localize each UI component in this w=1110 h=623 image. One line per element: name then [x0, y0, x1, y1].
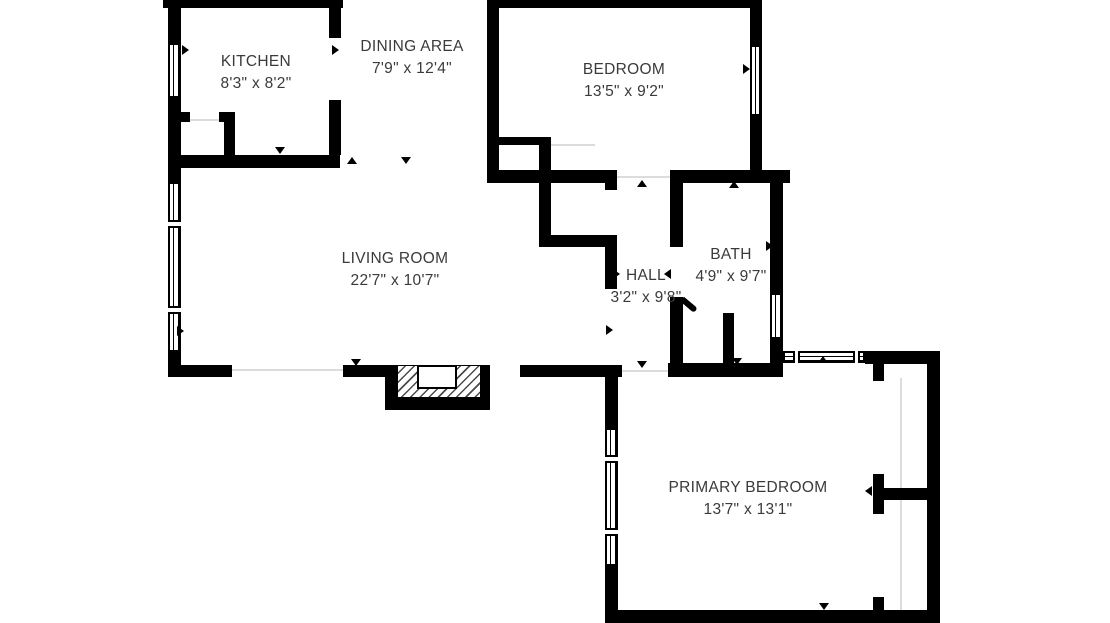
- room-name: DINING AREA: [332, 36, 492, 58]
- primary-closet-wall-stub-a: [873, 363, 884, 381]
- fireplace-firebox: [417, 365, 457, 389]
- bedroom-door-threshold: [617, 176, 670, 178]
- direction-marker-icon: [637, 180, 647, 187]
- room-name: PRIMARY BEDROOM: [626, 477, 870, 499]
- bedroom-door-jamb: [605, 183, 617, 190]
- direction-marker-icon: [401, 157, 411, 164]
- room-dimensions: 7'9" x 12'4": [332, 58, 492, 80]
- room-label-dining-area: DINING AREA 7'9" x 12'4": [332, 36, 492, 80]
- direction-marker-icon: [606, 325, 613, 335]
- room-dimensions: 13'5" x 9'2": [544, 81, 704, 103]
- direction-marker-icon: [729, 181, 739, 188]
- primary-closet-wall-stub-b: [873, 474, 884, 514]
- room-label-bath: BATH 4'9" x 9'7": [669, 244, 793, 288]
- wall-living-left-upper: [168, 168, 181, 183]
- wall-kitchen-left-upper: [168, 0, 181, 45]
- wall-primary-bottom: [605, 610, 940, 623]
- room-label-living-room: LIVING ROOM 22'7" x 10'7": [295, 248, 495, 292]
- room-dimensions: 8'3" x 8'2": [176, 73, 336, 95]
- wall-kitchen-dining-divider-lower: [329, 100, 341, 155]
- direction-marker-icon: [273, 0, 283, 7]
- primary-door-threshold: [622, 370, 668, 372]
- fireplace-wall-bottom: [385, 397, 490, 410]
- direction-marker-icon: [351, 359, 361, 366]
- kitchen-closet-jamb-left: [181, 112, 190, 122]
- wall-living-bottom-right: [520, 365, 595, 377]
- direction-marker-icon: [743, 64, 750, 74]
- room-dimensions: 22'7" x 10'7": [295, 270, 495, 292]
- wall-kitchen-top: [163, 0, 343, 8]
- direction-marker-icon: [818, 356, 828, 363]
- wall-bedroom-right-upper: [750, 0, 762, 46]
- primary-window-left: [605, 428, 618, 566]
- room-name: LIVING ROOM: [295, 248, 495, 270]
- wall-bath-bottom: [668, 363, 783, 377]
- wall-primary-right: [927, 351, 940, 623]
- kitchen-closet-rod-line: [190, 119, 219, 121]
- wall-hall-horizontal: [539, 235, 617, 247]
- wall-bedroom-left: [487, 0, 499, 183]
- room-label-kitchen: KITCHEN 8'3" x 8'2": [176, 51, 336, 95]
- direction-marker-icon: [177, 326, 184, 336]
- room-dimensions: 4'9" x 9'7": [669, 266, 793, 288]
- direction-marker-icon: [584, 0, 594, 7]
- primary-closet-divider: [884, 488, 927, 500]
- wall-bedroom-top: [487, 0, 762, 8]
- direction-marker-icon: [347, 157, 357, 164]
- room-dimensions: 3'2" x 9'8": [584, 287, 708, 309]
- room-label-primary-bedroom: PRIMARY BEDROOM 13'7" x 13'1": [626, 477, 870, 521]
- wall-living-bottom-mid: [343, 365, 385, 377]
- bedroom-closet-line: [549, 144, 595, 146]
- direction-marker-icon: [819, 603, 829, 610]
- room-name: KITCHEN: [176, 51, 336, 73]
- bedroom-window: [750, 45, 762, 116]
- wall-kitchen-bottom: [168, 155, 340, 168]
- bath-window: [770, 293, 783, 339]
- floor-plan: KITCHEN 8'3" x 8'2" DINING AREA 7'9" x 1…: [0, 0, 1110, 623]
- patio-opening-threshold: [232, 369, 343, 371]
- wall-primary-top-left-stub: [593, 365, 622, 377]
- wall-living-bottom-left: [168, 365, 232, 377]
- room-label-bedroom: BEDROOM 13'5" x 9'2": [544, 59, 704, 103]
- wall-primary-left-upper: [605, 377, 618, 429]
- fireplace-wall-right: [480, 365, 490, 410]
- direction-marker-icon: [489, 144, 499, 151]
- wall-bath-left-upper: [670, 170, 683, 247]
- room-name: BEDROOM: [544, 59, 704, 81]
- direction-marker-icon: [275, 147, 285, 154]
- direction-marker-icon: [732, 358, 742, 365]
- wall-bedroom-bottom-left: [487, 170, 617, 183]
- room-name: BATH: [669, 244, 793, 266]
- direction-marker-icon: [637, 361, 647, 368]
- room-dimensions: 13'7" x 13'1": [626, 499, 870, 521]
- wall-kitchen-dining-divider-upper: [329, 0, 341, 38]
- primary-closet-wall-stub-c: [873, 597, 884, 613]
